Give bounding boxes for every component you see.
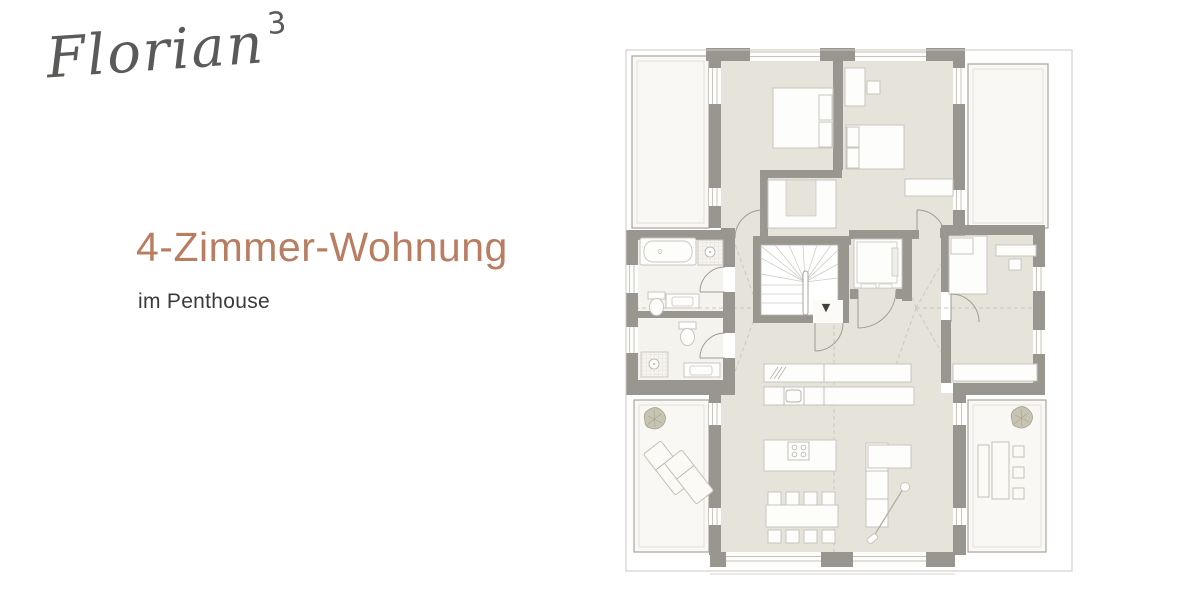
- window: [953, 68, 965, 104]
- kitchen-counter: [764, 387, 914, 405]
- chair: [768, 492, 781, 505]
- window: [626, 265, 638, 293]
- brand-logo: Florian3: [44, 6, 292, 92]
- chair: [804, 492, 817, 505]
- staircase: ▼: [761, 245, 843, 323]
- chair: [1013, 446, 1024, 457]
- terrace-top-right: [968, 64, 1048, 228]
- chair: [804, 530, 817, 543]
- chair: [822, 492, 835, 505]
- window: [726, 552, 821, 567]
- window: [953, 403, 966, 425]
- floor-plan: ▼: [618, 38, 1080, 578]
- pillow: [819, 95, 832, 120]
- chair: [768, 530, 781, 543]
- bathtub: [640, 238, 696, 265]
- plant-icon: [644, 408, 665, 429]
- page-subtitle: im Penthouse: [138, 290, 270, 314]
- chair: [1013, 467, 1024, 478]
- window: [709, 68, 721, 104]
- window: [953, 508, 966, 525]
- window: [953, 190, 965, 210]
- outdoor-table: [992, 442, 1009, 499]
- pillow: [847, 127, 859, 147]
- brand-logo-text: Florian: [44, 11, 267, 91]
- bench: [978, 445, 989, 497]
- window: [709, 403, 721, 425]
- sideboard: [905, 179, 953, 196]
- page-title: 4-Zimmer-Wohnung: [136, 224, 508, 271]
- side-table: [867, 81, 880, 94]
- vanity-sink: [684, 363, 720, 377]
- walk-in-closet: [768, 180, 836, 228]
- sofa-seat: [868, 445, 911, 468]
- pillow: [951, 238, 973, 254]
- brand-logo-superscript: 3: [266, 6, 289, 42]
- kitchen-wall-cabinets: [764, 364, 911, 382]
- wardrobe: [845, 68, 865, 106]
- window: [709, 188, 721, 206]
- elevator: [854, 239, 902, 288]
- pillow: [819, 122, 832, 147]
- chair: [1009, 259, 1021, 270]
- chair: [786, 492, 799, 505]
- chair: [1013, 488, 1024, 499]
- pillow: [847, 148, 859, 168]
- kitchen-island: [764, 440, 836, 471]
- window: [1033, 330, 1045, 354]
- terrace-top-left: [632, 56, 709, 228]
- dining-table: [766, 505, 838, 527]
- shower: [641, 352, 668, 377]
- plant-icon: [1011, 407, 1032, 428]
- toilet: [648, 292, 665, 316]
- sideboard: [953, 364, 1037, 381]
- chair: [822, 530, 835, 543]
- desk: [996, 245, 1036, 256]
- window: [853, 552, 926, 567]
- chair: [786, 530, 799, 543]
- window: [1033, 267, 1045, 291]
- window: [626, 327, 638, 353]
- stairs-down-arrow-icon: ▼: [822, 301, 831, 314]
- vanity-sink: [666, 294, 699, 308]
- toilet: [679, 322, 696, 346]
- shower: [698, 240, 723, 265]
- window: [709, 508, 721, 525]
